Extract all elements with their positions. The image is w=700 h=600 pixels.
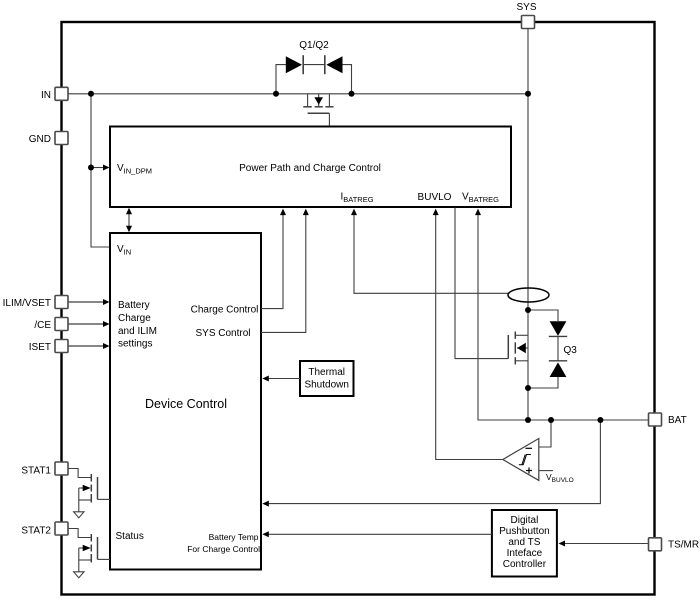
svg-text:STAT2: STAT2	[21, 526, 51, 537]
svg-text:and ILIM: and ILIM	[118, 326, 157, 337]
svg-text:Inteface: Inteface	[507, 548, 543, 559]
svg-text:Digital: Digital	[511, 515, 539, 526]
svg-text:For Charge Control: For Charge Control	[187, 544, 260, 554]
svg-text:Battery: Battery	[118, 300, 150, 311]
svg-text:Status: Status	[116, 531, 144, 542]
svg-text:BUVLO: BUVLO	[418, 192, 452, 203]
svg-text:Controller: Controller	[503, 559, 547, 570]
svg-text:SYS: SYS	[516, 2, 536, 13]
svg-text:SYS Control: SYS Control	[195, 328, 250, 339]
svg-text:Q3: Q3	[564, 345, 578, 356]
svg-text:Pushbutton: Pushbutton	[499, 526, 550, 537]
svg-text:GND: GND	[29, 134, 51, 145]
svg-text:Battery Temp: Battery Temp	[209, 532, 259, 542]
svg-text:STAT1: STAT1	[21, 466, 51, 477]
svg-text:Thermal: Thermal	[308, 367, 345, 378]
svg-text:TS/MR: TS/MR	[668, 540, 699, 551]
svg-text:Shutdown: Shutdown	[304, 379, 348, 390]
svg-text:Charge: Charge	[118, 313, 151, 324]
svg-text:and TS: and TS	[508, 537, 540, 548]
svg-text:ILIM/VSET: ILIM/VSET	[3, 298, 51, 309]
svg-text:IN: IN	[41, 90, 51, 101]
svg-text:/CE: /CE	[34, 320, 51, 331]
svg-text:ISET: ISET	[29, 342, 51, 353]
svg-text:Power Path and Charge Control: Power Path and Charge Control	[239, 163, 381, 174]
svg-text:settings: settings	[118, 339, 152, 350]
svg-text:Charge Control: Charge Control	[191, 304, 259, 315]
svg-text:BAT: BAT	[668, 415, 687, 426]
svg-text:Device Control: Device Control	[145, 397, 227, 411]
svg-text:Q1/Q2: Q1/Q2	[299, 40, 329, 51]
